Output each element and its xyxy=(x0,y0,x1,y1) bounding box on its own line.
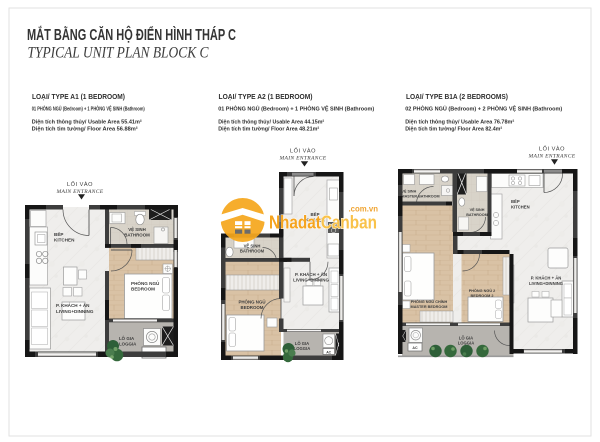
svg-text:P. KHÁCH + ĂN: P. KHÁCH + ĂN xyxy=(56,302,90,308)
svg-text:BẾP: BẾP xyxy=(54,231,63,237)
svg-text:PHÒNG NGỦ CHÍNH: PHÒNG NGỦ CHÍNH xyxy=(411,299,448,304)
svg-text:02 PHÒNG NGỦ (Bedroom) + 2 PHÒ: 02 PHÒNG NGỦ (Bedroom) + 2 PHÒNG VỆ SINH… xyxy=(405,105,562,113)
svg-text:AC: AC xyxy=(326,350,331,354)
svg-text:LIVING+DINNING: LIVING+DINNING xyxy=(529,281,563,286)
svg-text:BEDROOM: BEDROOM xyxy=(241,305,264,310)
svg-text:Diện tích tim tường/ Floor Are: Diện tích tim tường/ Floor Area 56.88m² xyxy=(32,126,138,133)
svg-text:TYPICAL UNIT PLAN BLOCK C: TYPICAL UNIT PLAN BLOCK C xyxy=(28,45,210,62)
svg-text:BATHROOM: BATHROOM xyxy=(124,233,150,238)
svg-text:LOẠI/ TYPE A2 (1 BEDROOM): LOẠI/ TYPE A2 (1 BEDROOM) xyxy=(219,92,313,101)
svg-text:MASTER BATHROOM: MASTER BATHROOM xyxy=(402,195,440,199)
svg-text:BẾP: BẾP xyxy=(511,199,520,204)
svg-text:01 PHÒNG NGỦ (Bedroom) + 1 PHÒ: 01 PHÒNG NGỦ (Bedroom) + 1 PHÒNG VỆ SINH… xyxy=(32,105,145,113)
svg-text:LỐI VÀO: LỐI VÀO xyxy=(539,146,565,153)
svg-text:LÔ GIA: LÔ GIA xyxy=(119,336,135,341)
svg-text:VỆ SINH: VỆ SINH xyxy=(470,207,485,212)
svg-text:LỐI VÀO: LỐI VÀO xyxy=(67,181,93,188)
svg-text:P. KHÁCH + ĂN: P. KHÁCH + ĂN xyxy=(531,276,562,281)
svg-text:PHÒNG NGỦ: PHÒNG NGỦ xyxy=(131,279,160,286)
svg-text:NhadatCanban: NhadatCanban xyxy=(269,212,377,233)
svg-text:Diện tích thông thủy/ Usable A: Diện tích thông thủy/ Usable Area 44.15m… xyxy=(218,119,324,126)
svg-text:LIVING+DINNING: LIVING+DINNING xyxy=(56,309,94,314)
svg-text:LOGGIA: LOGGIA xyxy=(294,346,311,351)
svg-text:LOẠI/ TYPE B1A (2 BEDROOMS): LOẠI/ TYPE B1A (2 BEDROOMS) xyxy=(406,92,508,101)
svg-text:KITCHEN: KITCHEN xyxy=(511,205,530,210)
svg-text:P. KHÁCH + ĂN: P. KHÁCH + ĂN xyxy=(295,272,327,277)
svg-text:01 PHÒNG NGỦ (Bedroom) + 1 PHÒ: 01 PHÒNG NGỦ (Bedroom) + 1 PHÒNG VỆ SINH… xyxy=(218,105,374,113)
svg-text:BATHROOM: BATHROOM xyxy=(240,249,265,254)
svg-text:MAIN ENTRANCE: MAIN ENTRANCE xyxy=(279,156,327,162)
svg-text:MAIN ENTRANCE: MAIN ENTRANCE xyxy=(56,189,104,195)
svg-text:VỆ SINH: VỆ SINH xyxy=(402,189,417,194)
svg-text:LỐI VÀO: LỐI VÀO xyxy=(290,148,316,155)
svg-text:.com.vn: .com.vn xyxy=(349,205,379,214)
svg-text:LOGGIA: LOGGIA xyxy=(119,342,137,347)
svg-text:PHÒNG NGỦ: PHÒNG NGỦ xyxy=(238,300,265,305)
svg-text:BEDROOM 2: BEDROOM 2 xyxy=(471,294,494,298)
svg-text:Diện tích thông thủy/ Usable A: Diện tích thông thủy/ Usable Area 76.78m… xyxy=(405,119,514,126)
svg-text:MAIN ENTRANCE: MAIN ENTRANCE xyxy=(528,154,576,160)
svg-text:KITCHEN: KITCHEN xyxy=(54,238,75,243)
svg-text:LOẠI/ TYPE A1 (1 BEDROOM): LOẠI/ TYPE A1 (1 BEDROOM) xyxy=(32,92,125,101)
svg-text:BEDROOM: BEDROOM xyxy=(131,287,155,292)
svg-text:Diện tích tim tường/ Floor Are: Diện tích tim tường/ Floor Area 48.21m² xyxy=(218,126,319,133)
svg-text:BATHROOM: BATHROOM xyxy=(466,213,487,217)
svg-text:PHÒNG NGỦ 2: PHÒNG NGỦ 2 xyxy=(469,288,496,293)
svg-text:MASTER BEDROOM: MASTER BEDROOM xyxy=(411,305,448,309)
svg-text:Diện tích tim tường/ Floor Are: Diện tích tim tường/ Floor Area 82.4m² xyxy=(405,126,502,133)
svg-text:AC: AC xyxy=(412,346,418,350)
svg-text:LOGGIA: LOGGIA xyxy=(458,341,475,346)
svg-text:VỆ SINH: VỆ SINH xyxy=(128,227,146,232)
svg-text:MẮT BẰNG CĂN HỘ ĐIỂN HÌNH THÁP: MẮT BẰNG CĂN HỘ ĐIỂN HÌNH THÁP C xyxy=(27,25,236,44)
svg-text:Diện tích thông thủy/ Usable A: Diện tích thông thủy/ Usable Area 55.41m… xyxy=(32,119,142,126)
